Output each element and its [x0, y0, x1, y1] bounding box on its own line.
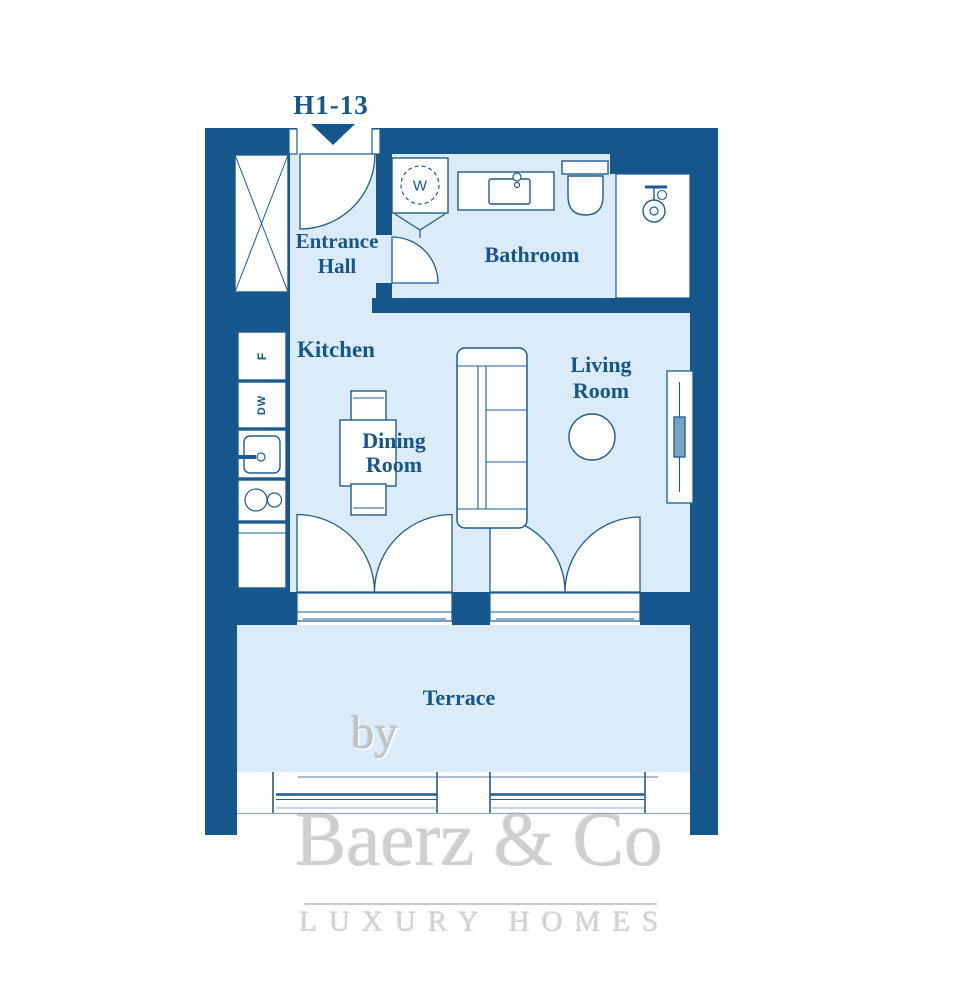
vanity-faucet: [515, 183, 520, 188]
sofa: [457, 348, 527, 528]
shower-head: [650, 207, 658, 215]
wall: [376, 283, 392, 313]
wall: [205, 592, 297, 625]
service-shaft: [235, 155, 288, 292]
tv-screen: [674, 417, 685, 457]
dishwasher-label: DW: [256, 395, 268, 415]
watermark-tagline: LUXURY HOMES: [300, 906, 671, 939]
unit-label: H1-13: [293, 90, 369, 122]
washer-label: W: [413, 178, 427, 195]
floorplan-page: H1-13 Entrance Hall Bathroom Kitchen Din…: [0, 0, 953, 1000]
cooktop-burner: [245, 489, 267, 511]
cooktop-burner: [268, 493, 282, 507]
wall: [610, 154, 718, 174]
watermark-divider: [304, 903, 657, 905]
toilet-bowl: [568, 176, 603, 215]
room-label-kitchen: Kitchen: [297, 336, 375, 363]
watermark-brand: Baerz & Co: [295, 795, 663, 884]
room-label-living-room: Living Room: [561, 352, 641, 404]
wall: [372, 128, 718, 154]
entrance-arrow-icon: [311, 124, 355, 145]
door-jamb: [372, 129, 380, 154]
coffee-table: [569, 414, 615, 460]
room-label-dining-room: Dining Room: [354, 429, 434, 477]
room-label-terrace: Terrace: [423, 685, 495, 711]
room-label-entrance-hall: Entrance Hall: [287, 229, 387, 279]
door-jamb: [289, 129, 297, 154]
wall: [640, 592, 718, 625]
tv-unit: [667, 371, 693, 503]
kitchen-faucet-handle: [257, 453, 265, 461]
wall: [205, 625, 237, 835]
fridge-label: F: [255, 352, 269, 360]
wall: [376, 154, 392, 235]
dining-chair: [351, 391, 386, 422]
vanity-basin: [489, 179, 530, 204]
kitchen-units: [236, 332, 286, 588]
wall: [372, 298, 718, 313]
wall: [690, 128, 718, 835]
vanity-faucet: [513, 173, 521, 181]
shower-area: [616, 174, 690, 298]
wall: [452, 592, 490, 625]
watermark-by: by: [351, 706, 398, 760]
dining-chair: [351, 484, 386, 515]
room-label-bathroom: Bathroom: [485, 242, 580, 268]
toilet-cistern: [562, 161, 608, 174]
